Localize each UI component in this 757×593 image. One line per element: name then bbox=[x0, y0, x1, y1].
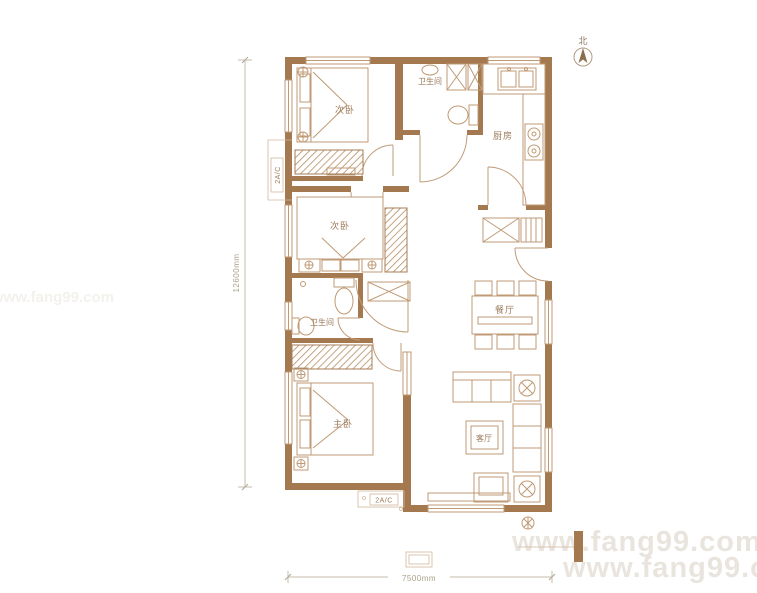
window-living-bottom bbox=[428, 505, 504, 512]
sink-icon bbox=[422, 65, 438, 75]
window-interior-hall bbox=[403, 352, 411, 395]
armchair bbox=[474, 473, 508, 502]
dimension-bottom: 7500mm bbox=[285, 570, 555, 583]
furniture-entry bbox=[483, 218, 542, 242]
dining-table bbox=[472, 296, 538, 334]
north-label: 北 bbox=[578, 36, 587, 46]
bedside-lamp-icon bbox=[298, 67, 308, 77]
wall-kitchen-bottom-b bbox=[526, 205, 545, 210]
window-bathroom2-left bbox=[285, 302, 292, 330]
dining-chair bbox=[475, 335, 492, 349]
floorplan-drawing: www.fang99.com www.fang99.com www.fang99… bbox=[0, 0, 757, 593]
bedside-lamp-icon bbox=[298, 132, 308, 142]
label-bedroom-top: 次卧 bbox=[335, 104, 355, 115]
window-kitchen-top bbox=[488, 57, 540, 64]
north-indicator: 北 bbox=[574, 36, 592, 66]
watermark-side: www.fang99.com bbox=[0, 289, 114, 306]
ac-platform-bottom: 2A/C bbox=[358, 491, 404, 511]
bed-top bbox=[297, 68, 368, 142]
ac-left-label: 2A/C bbox=[275, 166, 282, 184]
dimension-left: 12600mm bbox=[232, 57, 252, 490]
label-dining-room: 餐厅 bbox=[495, 304, 515, 315]
wall-master-bottom bbox=[285, 483, 411, 490]
wall-bedroom2-top-b bbox=[383, 186, 409, 192]
side-table-plant-icon bbox=[514, 375, 540, 401]
plant-icon bbox=[522, 517, 534, 529]
toilet-icon bbox=[448, 105, 478, 125]
wall-bathroom1-bottom-b bbox=[467, 130, 483, 135]
compass-needle-icon bbox=[579, 48, 588, 63]
wall-kitchen-bottom-a bbox=[478, 205, 488, 210]
furniture-corridor bbox=[368, 282, 410, 301]
label-master-bedroom: 主卧 bbox=[333, 418, 353, 429]
window-bedroom2-left bbox=[285, 205, 292, 257]
stove-icon bbox=[525, 124, 543, 160]
wall-balcony-post bbox=[574, 531, 583, 562]
wall-right-upper bbox=[545, 57, 552, 248]
door-kitchen bbox=[488, 167, 526, 205]
toilet-icon bbox=[334, 278, 354, 314]
furniture-bedroom-mid bbox=[297, 197, 407, 272]
label-bathroom-top: 卫生间 bbox=[418, 76, 442, 86]
dining-chair bbox=[475, 281, 492, 295]
wall-bathroom1-bottom-a bbox=[403, 130, 420, 135]
wardrobe-bedroom-mid bbox=[385, 208, 407, 272]
door-bedroom1 bbox=[362, 145, 393, 176]
ac-bottom-label: 2A/C bbox=[375, 498, 393, 505]
label-bathroom-mid: 卫生间 bbox=[310, 317, 334, 327]
dining-chair bbox=[519, 335, 536, 349]
label-living-room: 客厅 bbox=[476, 433, 492, 443]
watermark-layer: www.fang99.com www.fang99.com www.fang99… bbox=[0, 289, 757, 584]
dining-chair bbox=[519, 281, 536, 295]
side-table-plant-icon bbox=[514, 476, 540, 502]
kitchen-sink-icon bbox=[498, 68, 536, 91]
wall-bedroom2-top-a bbox=[285, 186, 351, 192]
furniture-dining bbox=[472, 281, 538, 349]
dining-chair bbox=[497, 281, 514, 295]
furniture-bedroom-top bbox=[295, 67, 368, 175]
floorplan-page: www.fang99.com www.fang99.com www.fang99… bbox=[0, 0, 757, 593]
dimension-width-label: 7500mm bbox=[402, 574, 436, 583]
wall-master-top bbox=[285, 338, 373, 343]
dining-chair bbox=[497, 335, 514, 349]
sofa-long bbox=[453, 372, 511, 402]
label-bedroom-mid: 次卧 bbox=[330, 220, 350, 231]
window-bedroom1-top bbox=[306, 57, 370, 64]
window-master-left bbox=[285, 372, 292, 444]
wardrobe-master bbox=[292, 345, 372, 369]
shower-icon bbox=[301, 282, 306, 287]
sofa-chaise bbox=[513, 404, 541, 472]
wall-bathroom2-right bbox=[358, 273, 363, 318]
window-living-right bbox=[545, 428, 552, 472]
label-kitchen: 厨房 bbox=[493, 130, 513, 141]
furniture-bathroom-top bbox=[422, 64, 482, 125]
watermark-bottom-2: www.fang99.co bbox=[562, 552, 757, 584]
window-dining-right bbox=[545, 300, 552, 344]
furniture-master-bedroom bbox=[292, 345, 373, 470]
wardrobe-bedroom-top bbox=[295, 150, 363, 174]
wall-bedroom1-bottom bbox=[292, 176, 363, 181]
door-entry bbox=[515, 248, 548, 281]
door-bathroom1 bbox=[420, 135, 467, 182]
dimension-height-label: 12600mm bbox=[232, 253, 241, 292]
wall-bathroom2-top bbox=[285, 273, 363, 278]
door-bathroom2 bbox=[338, 318, 360, 340]
window-bedroom1-left bbox=[285, 80, 292, 132]
wall-bedroom1-right bbox=[395, 57, 403, 140]
door-master bbox=[373, 343, 401, 371]
